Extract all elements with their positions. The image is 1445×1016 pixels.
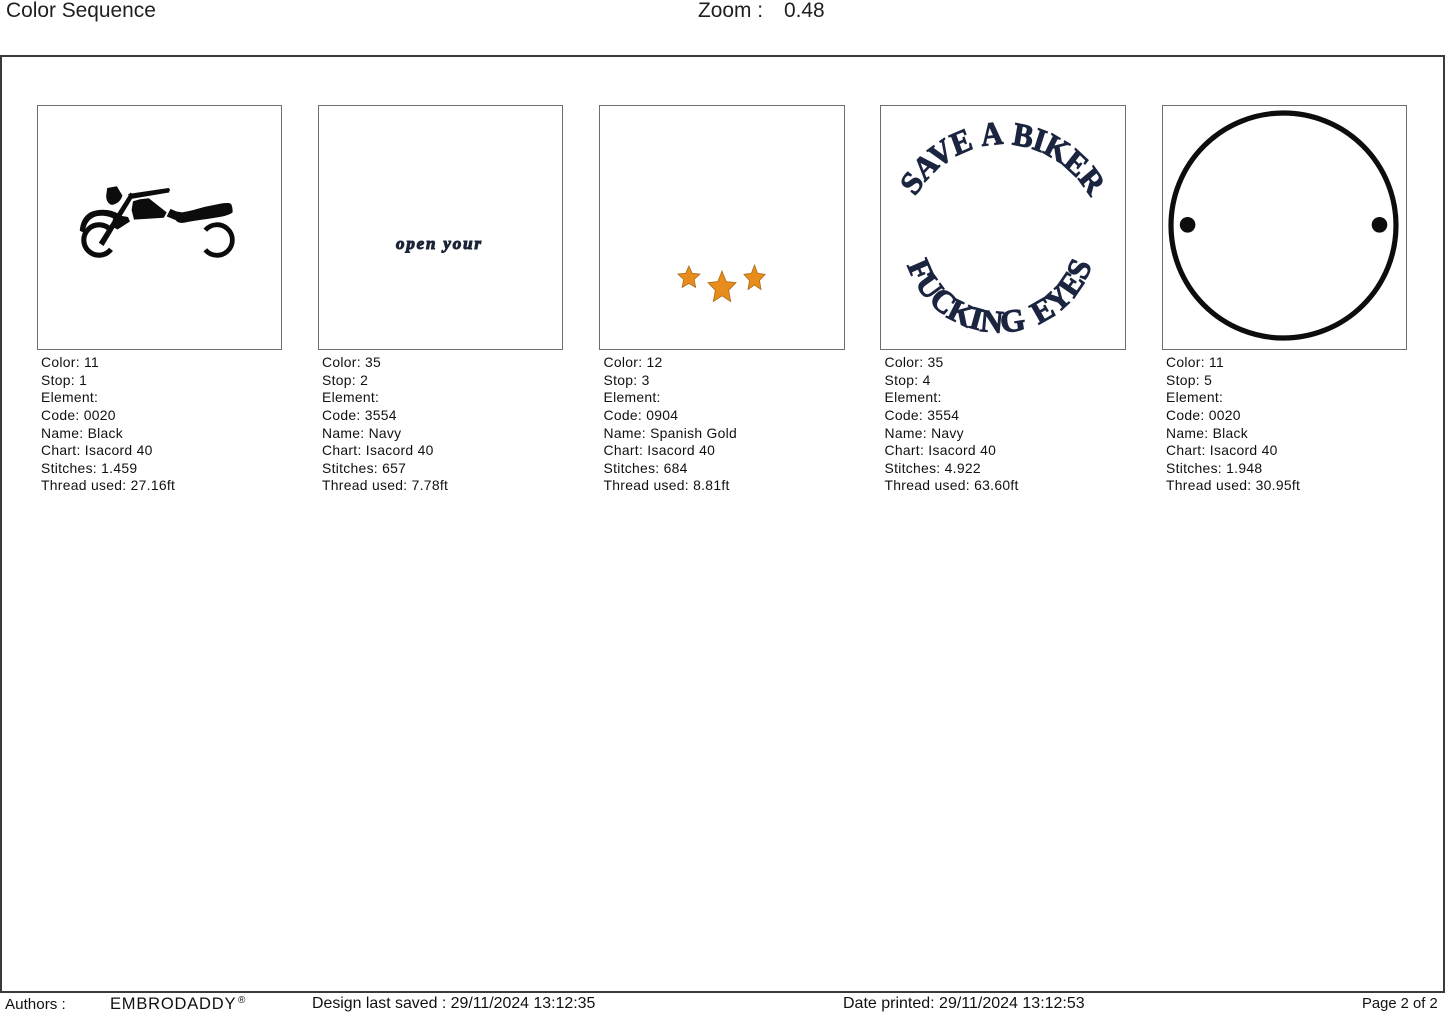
svg-text:FUCKING EYES: FUCKING EYES <box>900 254 1098 340</box>
svg-text:SAVE A BIKER: SAVE A BIKER <box>893 115 1112 203</box>
svg-text:open your: open your <box>396 234 481 253</box>
